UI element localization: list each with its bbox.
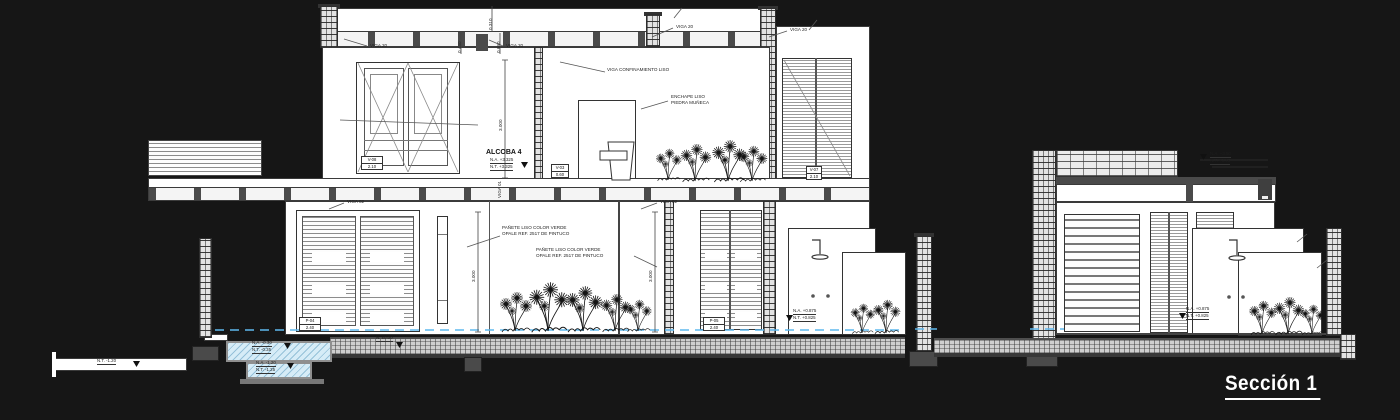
interior-wall-line [618,201,620,335]
tag-size: 2.10 [807,173,821,180]
beam-label: VIGA 20 [506,43,523,49]
ground-column [763,201,776,335]
level-value: N.A. -0.30 [252,340,272,347]
dim-text: 3.000 [498,120,503,132]
level-pool-upper: N.A. -0.30 N.T. -0.35 [252,340,272,354]
level-value: N.T. -1.25 [256,367,275,374]
blind-mullion [1168,212,1170,333]
room-label-alcoba4: ALCOBA 4 [486,149,522,156]
level-value: N. ±0.00 [376,335,393,342]
shower-panel [842,252,906,335]
shutter-mullion [815,58,817,178]
pergola-louvers [148,140,262,176]
level-alcoba: N.A. +3.325 N.T. +3.325 [490,157,513,171]
pavilion-floor-line [1056,333,1326,335]
dim-text: 0.680 [496,42,501,54]
beam-label: VIGA 20 [676,24,693,30]
level-shower-right: N.A. +0.875 N.T. +0.825 [1186,306,1209,320]
slit-window-rail [438,300,447,301]
clad-wall-panel [578,100,636,180]
louver-leaf [360,216,414,326]
window-rail [364,150,448,151]
upper-shutter-window [782,58,852,178]
annotation-plaster-2: PAÑETE LISO COLOR VERDE OPALE REF. 2517 … [536,247,603,259]
beam-label: VIGA 02 [347,199,364,205]
tag-size: 2.10 [362,163,382,170]
slit-window-rail [438,234,447,235]
window-pane [414,74,442,134]
floor-joist-band [148,188,870,201]
ground-column [664,201,674,335]
level-pool-lower: N.A. -1.20 N.T. -1.25 [256,360,276,374]
louver-gap [705,283,727,292]
window-pane [370,74,398,134]
dim-text: 0.310 [488,19,493,31]
roof-slab [322,8,770,32]
footing [192,346,219,361]
level-value: N.A. +3.325 [490,157,513,164]
level-value: N.T. +3.45 [1210,158,1230,165]
upper-interior-column [534,47,543,180]
louver-mullion [729,210,731,330]
annotation-line: OPALE REF. 2517 DE PINTUCO [536,253,603,258]
pavilion-stone-column [1032,150,1056,356]
ground-fill-band [330,337,905,358]
roof-joist-band [322,32,770,47]
level-value: N.T. +0.825 [793,315,816,322]
ground-fill-band-right [934,338,1344,357]
annotation-line: PIEDRA MUÑECA [671,100,709,105]
annotation-line: ENCHAPE LISO [671,94,705,99]
interior-wall-line [489,201,490,335]
louver-gap [705,250,727,259]
louver-gap [735,250,757,259]
fascia-post [1186,184,1193,202]
louver-gap [312,285,346,295]
stone-veneer-band [1056,150,1178,177]
tag-size: 2.40 [704,324,724,331]
annotation-line: PAÑETE LISO COLOR VERDE [502,225,567,230]
left-terrain-wall [55,358,187,371]
opening-tag: V-03 0.60 [551,164,569,178]
level-shower-left: N.A. +0.875 N.T. +0.825 [793,308,816,322]
annotation-cladding: ENCHAPE LISO PIEDRA MUÑECA [671,94,709,106]
section-title: Sección 1 [1225,372,1320,400]
shower-panel [1238,252,1322,336]
beam-label-rotated: VIGA 01 [497,181,502,198]
level-value: N.A. -1.20 [256,360,276,367]
tag-size: 2.40 [300,324,320,331]
opening-tag: P-05 2.40 [703,317,725,331]
pavilion-fascia [1056,184,1276,202]
window-rail [364,140,448,141]
tag-size: 0.60 [552,171,568,178]
level-value: N.T. -1.20 [97,358,116,365]
louver-gap [735,312,757,321]
beam-label: VIGA 02 [660,199,677,205]
roof-parapet-left [320,6,338,48]
pavilion-louver-wall [1064,214,1140,332]
louver-gap [312,252,346,262]
garden-wall [916,236,932,358]
louver-gap [370,285,404,295]
roof-beam-block [476,34,488,51]
pool-shell-base [240,379,324,384]
dim-text: 3.000 [471,271,476,283]
annotation-beam: VIGA CONFINAMIENTO LISO [607,67,669,73]
annotation-line: OPALE REF. 2517 DE PINTUCO [502,231,569,236]
louver-gap [735,283,757,292]
dim-text: 3.000 [648,271,653,283]
slit-window [437,216,448,324]
level-terrain-left: N.T. -1.20 [97,358,116,365]
louver-gap [370,252,404,262]
ground-step-block [1340,334,1356,360]
opening-tag: V-08 2.10 [361,156,383,170]
level-value: N.T. -0.35 [252,347,271,354]
annotation-line: PAÑETE LISO COLOR VERDE [536,247,601,252]
section-drawing-canvas: ALCOBA 4 N.A. +3.325 N.T. +3.325 VIGA CO… [0,0,1400,420]
beam-label: VIGA 20 [370,43,387,49]
louver-leaf [302,216,356,326]
roof-parapet-mid [646,14,660,47]
level-value: N.A. +0.875 [793,308,816,315]
stone-column-right [1326,228,1342,336]
opening-tag: P-04 2.40 [299,317,321,331]
beam-label: VIGA 20 [790,27,807,33]
level-ground-zero: N. ±0.00 [376,335,393,342]
level-pavilion-roof: N.A. +3.50 N.T. +3.45 [1210,151,1231,165]
louver-gap [370,312,404,322]
level-value: N.T. +3.325 [490,164,513,171]
pavilion-roof-slab [1056,177,1276,184]
floor-slab [148,178,870,188]
retaining-wall-left [199,238,212,338]
left-terrain-post [52,352,56,377]
fascia-light [1262,196,1268,199]
annotation-plaster-1: PAÑETE LISO COLOR VERDE OPALE REF. 2517 … [502,225,569,237]
level-value: N.T. +0.825 [1186,313,1209,320]
level-value: N.A. +3.50 [1210,151,1231,158]
pool-upper-basin [226,341,332,362]
footing [464,357,482,372]
dim-text: 0.430 [457,42,462,54]
opening-tag: V-07 2.10 [806,166,822,180]
level-value: N.A. +0.875 [1186,306,1209,313]
